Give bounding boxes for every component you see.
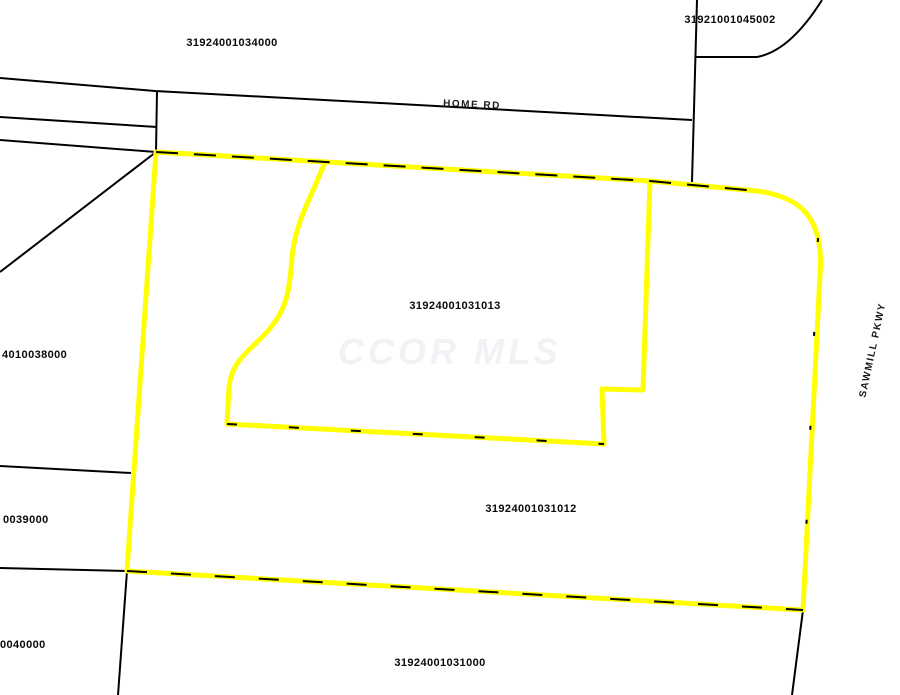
bottom-right-vertical-line [792, 610, 803, 695]
parcel-label-34000: 31924001034000 [186, 37, 277, 49]
parcel-label-39000: 0039000 [3, 514, 49, 526]
diagonal-parcel-line [0, 152, 156, 272]
top-right-vertical-line [692, 0, 697, 182]
left-parcel-line-upper [0, 117, 157, 127]
highlighted-parcel-group [127, 152, 821, 610]
parcel-label-38000: 4010038000 [2, 349, 67, 361]
left-parcel-line-mid [0, 140, 156, 152]
home-rd-north-line [0, 78, 692, 120]
watermark: CCOR MLS [338, 331, 562, 373]
parcel-45002-corner-curve [695, 0, 822, 57]
parcel-label-31013: 31924001031013 [409, 300, 500, 312]
left-parcel-line-38000-39000 [0, 466, 131, 473]
parcel-label-45002: 31921001045002 [684, 14, 775, 26]
parcel-map: CCOR MLS 31924001034000 31921001045002 3… [0, 0, 900, 695]
left-vertical-stub [156, 91, 157, 152]
parcel-label-31000: 31924001031000 [394, 657, 485, 669]
left-parcel-line-39000-40000 [0, 568, 127, 571]
parcel-label-40000: 0040000 [0, 639, 46, 651]
bottom-left-vertical-line [118, 571, 127, 695]
parcel-label-31012: 31924001031012 [485, 503, 576, 515]
